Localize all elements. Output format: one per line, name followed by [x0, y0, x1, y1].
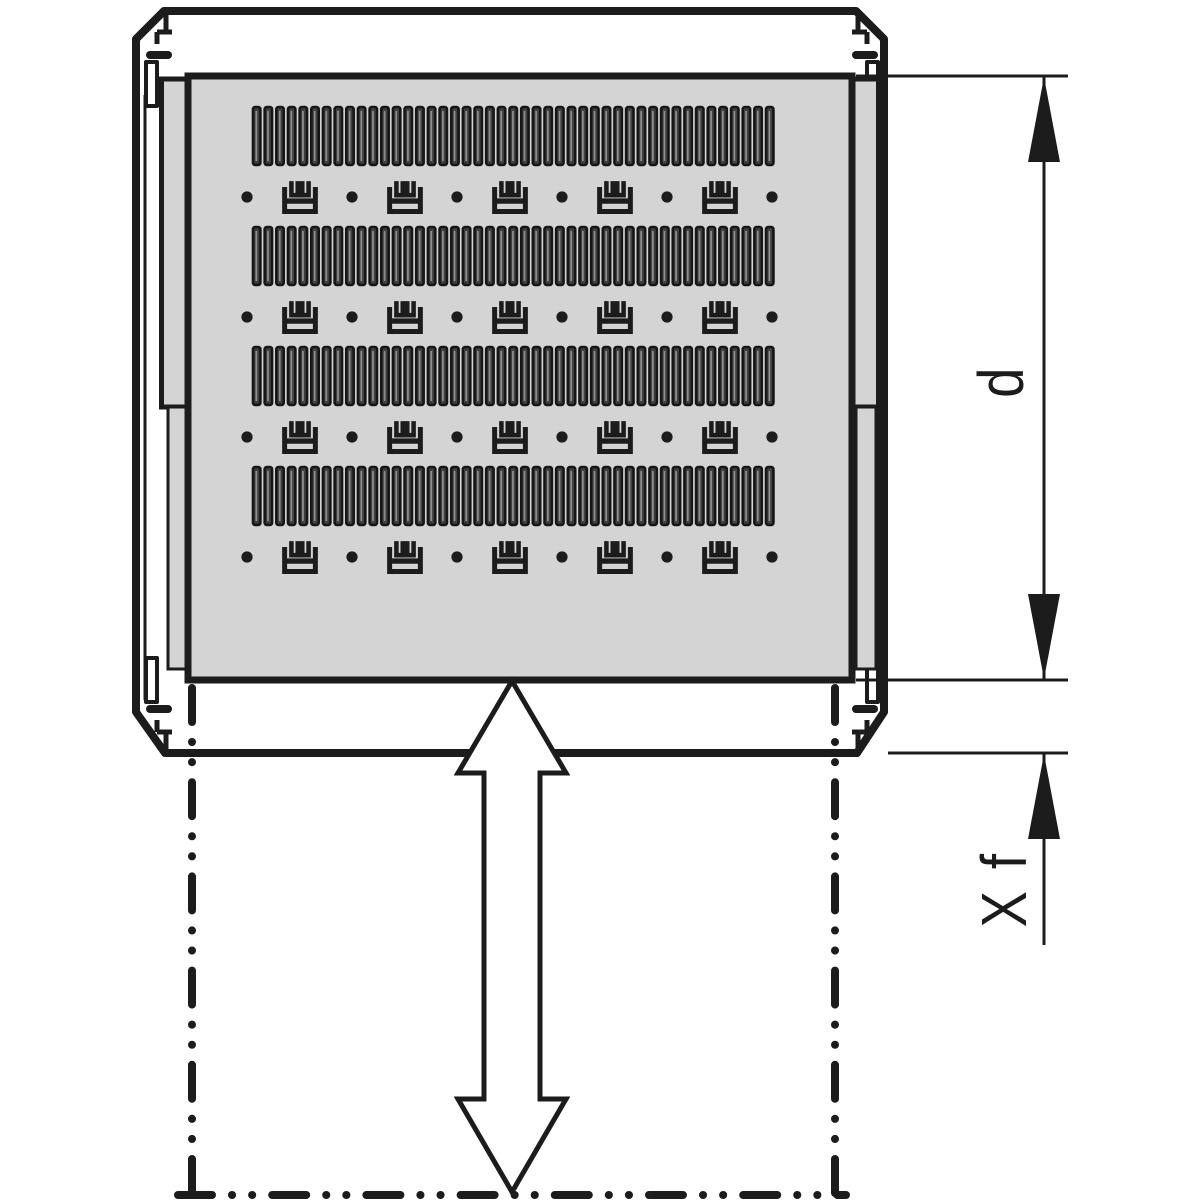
vent-slot-highlight: [500, 231, 502, 281]
vent-slot-highlight: [290, 231, 292, 281]
vent-slot-highlight: [745, 111, 747, 161]
vent-slot-highlight: [454, 231, 456, 281]
vent-slot-highlight: [570, 231, 572, 281]
vent-slot-highlight: [594, 351, 596, 401]
vent-slot-highlight: [687, 111, 689, 161]
vent-slot-highlight: [279, 471, 281, 521]
vent-slot-highlight: [559, 111, 561, 161]
vent-slot-highlight: [407, 231, 409, 281]
vent-slot-highlight: [465, 231, 467, 281]
vent-slot-highlight: [372, 351, 374, 401]
vent-slot-highlight: [477, 231, 479, 281]
fixing-hole: [661, 191, 672, 202]
vent-slot-highlight: [687, 351, 689, 401]
slide-rail-right-lower: [856, 407, 876, 669]
fixing-hole: [451, 431, 462, 442]
fixing-hole: [556, 431, 567, 442]
vent-slot-highlight: [430, 231, 432, 281]
vent-slot-highlight: [430, 471, 432, 521]
pull-out-direction-arrow: [458, 681, 566, 1192]
vent-slot-highlight: [734, 111, 736, 161]
vent-slot-highlight: [407, 351, 409, 401]
vent-slot-highlight: [512, 471, 514, 521]
vent-slot-highlight: [652, 471, 654, 521]
vent-slot-highlight: [687, 231, 689, 281]
vent-slot-highlight: [629, 351, 631, 401]
vent-slot-highlight: [454, 351, 456, 401]
vent-slot-highlight: [570, 351, 572, 401]
vent-slot-highlight: [279, 351, 281, 401]
vent-slot-highlight: [524, 231, 526, 281]
vent-slot-highlight: [734, 471, 736, 521]
vent-slot-highlight: [605, 231, 607, 281]
vent-slot-highlight: [582, 351, 584, 401]
vent-slot-highlight: [617, 471, 619, 521]
vent-slot-highlight: [349, 111, 351, 161]
vent-slot-highlight: [302, 111, 304, 161]
vent-slot-highlight: [547, 111, 549, 161]
vent-slot-highlight: [710, 351, 712, 401]
technical-drawing: d X f: [0, 0, 1200, 1200]
fixing-hole: [556, 311, 567, 322]
vent-slot-highlight: [477, 471, 479, 521]
vent-slot-highlight: [640, 111, 642, 161]
vent-slot-highlight: [699, 111, 701, 161]
vent-slot-highlight: [500, 111, 502, 161]
dimension-label-d: d: [965, 364, 1037, 398]
fixing-hole: [451, 191, 462, 202]
vent-slot-highlight: [325, 471, 327, 521]
fixing-hole: [346, 311, 357, 322]
slide-rail-left: [162, 79, 188, 407]
vent-slot-highlight: [675, 471, 677, 521]
vent-slot-highlight: [407, 471, 409, 521]
vent-slot-highlight: [757, 471, 759, 521]
vent-slot-highlight: [535, 471, 537, 521]
vent-slot-highlight: [360, 471, 362, 521]
vent-slot-highlight: [384, 351, 386, 401]
vent-slot-highlight: [594, 231, 596, 281]
vent-slot-highlight: [699, 471, 701, 521]
vent-slot-highlight: [652, 231, 654, 281]
vent-slot-highlight: [442, 351, 444, 401]
vent-slot-highlight: [372, 111, 374, 161]
vent-slot-highlight: [314, 351, 316, 401]
vent-slot-highlight: [710, 111, 712, 161]
vent-slot-highlight: [605, 471, 607, 521]
vent-slot-highlight: [267, 111, 269, 161]
vent-slot-highlight: [769, 351, 771, 401]
vent-slot-highlight: [489, 471, 491, 521]
vent-slot-highlight: [477, 111, 479, 161]
vent-slot-highlight: [699, 231, 701, 281]
vent-slot-highlight: [757, 231, 759, 281]
fixing-hole: [661, 311, 672, 322]
vent-slot-highlight: [314, 111, 316, 161]
vent-slot-highlight: [559, 231, 561, 281]
vent-slot-highlight: [395, 351, 397, 401]
vent-slot-highlight: [442, 111, 444, 161]
vent-slot-highlight: [360, 231, 362, 281]
vent-slot-highlight: [524, 351, 526, 401]
fixing-hole: [451, 551, 462, 562]
vent-slot-highlight: [419, 111, 421, 161]
vent-slot-highlight: [267, 231, 269, 281]
vent-slot-highlight: [477, 351, 479, 401]
vent-slot-highlight: [524, 471, 526, 521]
vent-slot-highlight: [640, 231, 642, 281]
fixing-hole: [241, 551, 252, 562]
fixing-hole: [451, 311, 462, 322]
vent-slot-highlight: [664, 471, 666, 521]
fixing-hole: [766, 431, 777, 442]
dimension-label-xf: X f: [968, 851, 1040, 928]
dimension-xf: X f: [888, 753, 1068, 945]
vent-band: [253, 227, 773, 285]
vent-slot-highlight: [675, 351, 677, 401]
vent-slot-highlight: [395, 231, 397, 281]
vent-slot-highlight: [675, 231, 677, 281]
vent-slot-highlight: [384, 231, 386, 281]
vent-slot-highlight: [535, 351, 537, 401]
vent-slot-highlight: [722, 351, 724, 401]
fixing-hole: [241, 311, 252, 322]
vent-slot-highlight: [372, 471, 374, 521]
vent-slot-highlight: [290, 351, 292, 401]
vent-slot-highlight: [535, 111, 537, 161]
vent-slot-highlight: [652, 111, 654, 161]
vent-slot-highlight: [710, 231, 712, 281]
arrowhead-down: [1028, 594, 1060, 679]
vent-slot-highlight: [384, 111, 386, 161]
vent-slot-highlight: [267, 351, 269, 401]
vent-slot-highlight: [325, 231, 327, 281]
vent-slot-highlight: [454, 471, 456, 521]
vent-slot-highlight: [745, 471, 747, 521]
vent-slot-highlight: [675, 111, 677, 161]
vent-slot-highlight: [279, 111, 281, 161]
vent-slot-highlight: [430, 351, 432, 401]
vent-slot-highlight: [722, 111, 724, 161]
fixing-hole: [241, 191, 252, 202]
vent-slot-highlight: [290, 111, 292, 161]
vent-slot-highlight: [547, 231, 549, 281]
vent-slot-highlight: [489, 351, 491, 401]
vent-slot-highlight: [582, 231, 584, 281]
vent-slot-highlight: [664, 351, 666, 401]
vent-slot-highlight: [419, 351, 421, 401]
vent-slot-highlight: [570, 111, 572, 161]
fixing-hole: [661, 551, 672, 562]
vent-slot-highlight: [570, 471, 572, 521]
vent-slot-highlight: [547, 351, 549, 401]
vent-slot-highlight: [617, 231, 619, 281]
vent-slot-highlight: [256, 111, 258, 161]
vent-slot-highlight: [290, 471, 292, 521]
vent-band: [253, 347, 773, 405]
vent-slot-highlight: [757, 351, 759, 401]
vent-slot-highlight: [745, 231, 747, 281]
vent-slot-highlight: [360, 111, 362, 161]
vent-slot-highlight: [617, 111, 619, 161]
vent-slot-highlight: [512, 351, 514, 401]
vent-slot-highlight: [594, 471, 596, 521]
vent-slot-highlight: [664, 111, 666, 161]
vent-slot-highlight: [465, 471, 467, 521]
vent-slot-highlight: [699, 351, 701, 401]
vent-slot-highlight: [302, 351, 304, 401]
vent-slot-highlight: [337, 231, 339, 281]
vent-slot-highlight: [652, 351, 654, 401]
vent-slot-highlight: [372, 231, 374, 281]
vent-slot-highlight: [512, 111, 514, 161]
fixing-hole: [766, 551, 777, 562]
vent-slot-highlight: [454, 111, 456, 161]
vent-slot-highlight: [582, 471, 584, 521]
arrowhead-up: [1028, 77, 1060, 162]
vent-slot-highlight: [640, 351, 642, 401]
vent-slot-highlight: [419, 471, 421, 521]
vent-slot-highlight: [325, 351, 327, 401]
vent-slot-highlight: [547, 471, 549, 521]
fixing-hole: [661, 431, 672, 442]
vent-slot-highlight: [302, 471, 304, 521]
vent-slot-highlight: [302, 231, 304, 281]
vent-slot-highlight: [710, 471, 712, 521]
vent-slot-highlight: [535, 231, 537, 281]
vent-slot-highlight: [559, 471, 561, 521]
vent-slot-highlight: [559, 351, 561, 401]
vent-slot-highlight: [664, 231, 666, 281]
vent-slot-highlight: [489, 231, 491, 281]
vent-slot-highlight: [734, 231, 736, 281]
vent-slot-highlight: [629, 471, 631, 521]
vent-slot-highlight: [256, 351, 258, 401]
vent-band: [253, 467, 773, 525]
vent-slot-highlight: [722, 471, 724, 521]
vent-slot-highlight: [349, 351, 351, 401]
vent-slot-highlight: [745, 351, 747, 401]
vent-slot-highlight: [734, 351, 736, 401]
vent-slot-highlight: [722, 231, 724, 281]
fixing-hole: [346, 191, 357, 202]
vent-slot-highlight: [757, 111, 759, 161]
vent-slot-highlight: [419, 231, 421, 281]
vent-slot-highlight: [442, 471, 444, 521]
vent-slot-highlight: [629, 111, 631, 161]
vent-slot-highlight: [489, 111, 491, 161]
fixing-hole: [556, 551, 567, 562]
vent-slot-highlight: [337, 111, 339, 161]
vent-slot-highlight: [430, 111, 432, 161]
vent-slot-highlight: [256, 471, 258, 521]
vent-slot-highlight: [349, 231, 351, 281]
fixing-hole: [766, 311, 777, 322]
vent-slot-highlight: [594, 111, 596, 161]
vent-slot-highlight: [500, 471, 502, 521]
vent-slot-highlight: [465, 351, 467, 401]
vent-slot-highlight: [582, 111, 584, 161]
vent-slot-highlight: [395, 111, 397, 161]
vent-slot-highlight: [640, 471, 642, 521]
vent-slot-highlight: [605, 111, 607, 161]
vent-slot-highlight: [279, 231, 281, 281]
vent-slot-highlight: [267, 471, 269, 521]
vent-slot-highlight: [314, 231, 316, 281]
vent-band: [253, 107, 773, 165]
vent-slot-highlight: [407, 111, 409, 161]
vent-slot-highlight: [395, 471, 397, 521]
vent-slot-highlight: [769, 231, 771, 281]
vent-slot-highlight: [360, 351, 362, 401]
slide-rail-right: [853, 79, 879, 407]
vent-slot-highlight: [605, 351, 607, 401]
vent-slot-highlight: [314, 471, 316, 521]
fixing-hole: [346, 431, 357, 442]
vent-slot-highlight: [524, 111, 526, 161]
fixing-hole: [556, 191, 567, 202]
fixing-hole: [766, 191, 777, 202]
vent-slot-highlight: [384, 471, 386, 521]
vent-slot-highlight: [769, 471, 771, 521]
vent-slot-highlight: [629, 231, 631, 281]
vent-slot-highlight: [337, 471, 339, 521]
fixing-hole: [346, 551, 357, 562]
vent-slot-highlight: [465, 111, 467, 161]
vent-slot-highlight: [349, 471, 351, 521]
vent-slot-highlight: [687, 471, 689, 521]
vent-slot-highlight: [256, 231, 258, 281]
vent-slot-highlight: [325, 111, 327, 161]
drawing-canvas: d X f: [0, 0, 1200, 1200]
vent-slot-highlight: [442, 231, 444, 281]
vent-slot-highlight: [769, 111, 771, 161]
vent-slot-highlight: [500, 351, 502, 401]
vent-slot-highlight: [512, 231, 514, 281]
fixing-hole: [241, 431, 252, 442]
vent-slot-highlight: [617, 351, 619, 401]
arrowhead-up-xf: [1028, 754, 1060, 839]
vent-slot-highlight: [337, 351, 339, 401]
